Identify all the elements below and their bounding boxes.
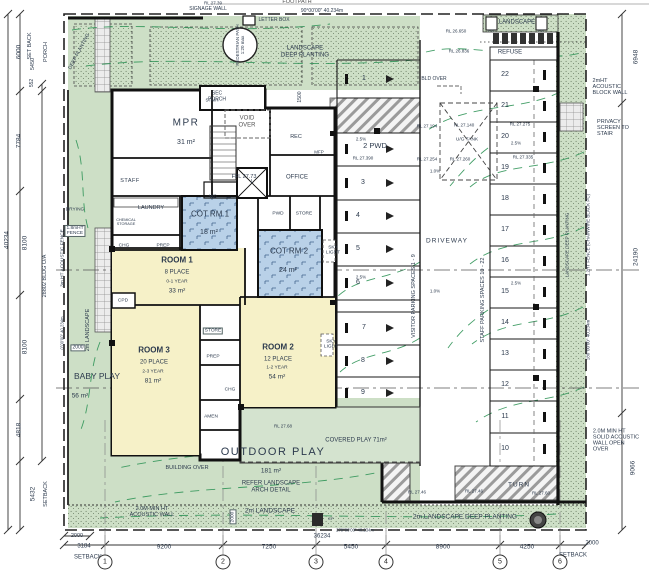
refuse-enclosure <box>490 47 558 60</box>
pedestrian-path-circle <box>223 28 257 62</box>
cot-room-1 <box>182 196 237 250</box>
cpd-room <box>112 293 135 308</box>
letter-box <box>243 16 255 25</box>
bike-racks <box>493 33 553 44</box>
laundry-bench <box>114 198 178 207</box>
fg-box-2 <box>536 17 547 30</box>
secure-porch <box>200 86 265 110</box>
room-3-area <box>112 305 200 455</box>
fg-box-1 <box>486 17 497 30</box>
skylight-1-outline <box>323 240 335 262</box>
floor-plan-drawing: RL 27.39FOOTPATH90°00'00" 40.234mSIGNAGE… <box>0 0 649 570</box>
turn-bay <box>455 466 558 500</box>
electrical-pit <box>312 513 323 526</box>
skylight-2-outline <box>321 334 333 356</box>
building-walls <box>112 86 335 460</box>
covered-play-area <box>240 407 420 463</box>
cot-room-2 <box>258 230 322 297</box>
plan-linework <box>0 0 649 570</box>
